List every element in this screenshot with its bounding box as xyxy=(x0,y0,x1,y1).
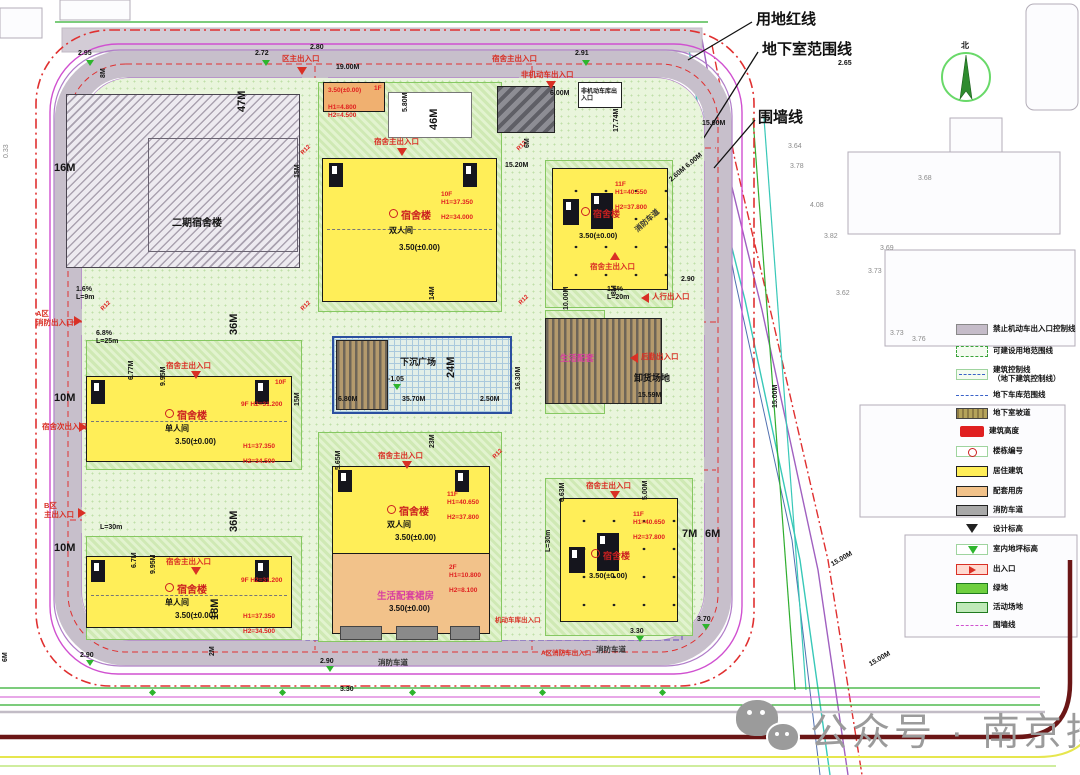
legend-swatch xyxy=(960,426,984,437)
site-plan-canvas: 二期宿舍楼 下沉广场 生活配套 卸货场地 3.50(±0.00) H1=4.80… xyxy=(0,0,1080,775)
dim-label: 2.72 xyxy=(255,50,269,58)
dim-label: 6.7M xyxy=(131,552,139,568)
elevation-marker-icon xyxy=(393,384,401,390)
dim-label: 2M xyxy=(209,646,217,656)
dorm-n-name: 宿舍楼 xyxy=(389,207,431,222)
north-label: 北 xyxy=(961,42,969,51)
dim-label: 16M xyxy=(54,162,75,174)
gate-building: 3.50(±0.00) H1=4.800 H2=4.500 1F xyxy=(323,82,385,112)
dim-label: 6.8% L=25m xyxy=(96,330,118,345)
dorm-w-h: H1=37.350 H2=34.500 xyxy=(243,435,275,466)
dim-label: 7M xyxy=(682,528,697,540)
dim-label: 23M xyxy=(429,434,437,448)
legend-item: 配套用房 xyxy=(956,486,1023,497)
entrance-arrow-icon xyxy=(630,353,638,363)
entrance-label: 宿舍主出入口 xyxy=(492,55,537,64)
dim-label: 3.30 xyxy=(340,686,354,694)
dim-label: 36M xyxy=(228,511,240,532)
dim-label: 36M xyxy=(228,314,240,335)
elevation-marker-icon xyxy=(326,666,334,672)
entrance-label: A区消防车出入口 xyxy=(541,650,591,657)
dim-label: 17.74M xyxy=(613,109,621,132)
dorm-w-side: 9F H2=31.200 xyxy=(241,393,282,409)
entrance-label: 区主出入口 xyxy=(282,55,320,64)
canopy xyxy=(396,626,438,640)
spot-elevation: 0.33 xyxy=(3,144,11,158)
spot-elevation: 3.73 xyxy=(868,268,882,276)
dim-label: 6.77M xyxy=(128,361,136,380)
dim-label: 15.59M xyxy=(638,392,661,400)
dim-label: 35.70M xyxy=(402,396,425,404)
elevation-marker-icon xyxy=(86,660,94,666)
gate-elev: 3.50(±0.00) xyxy=(328,87,361,95)
callout-wall-line: 围墙线 xyxy=(758,106,803,127)
dim-label: 2.65 xyxy=(838,60,852,68)
dim-label: 18M xyxy=(209,599,221,620)
entrance-label: 宿舍主出入口 xyxy=(166,558,211,567)
elevation-marker-icon xyxy=(262,60,270,66)
legend-swatch xyxy=(956,620,988,631)
dim-label: 2.90 xyxy=(320,658,334,666)
legend-swatch xyxy=(956,446,988,457)
phase2-label: 二期宿舍楼 xyxy=(172,218,222,229)
dim-label: 8M xyxy=(100,68,108,78)
bike-ramp xyxy=(497,86,555,133)
dim-label: 6M xyxy=(705,528,720,540)
spot-elevation: 3.82 xyxy=(824,233,838,241)
legend-item: 消防车道 xyxy=(956,505,1023,516)
legend-swatch xyxy=(956,564,988,575)
dorm-w-name: 宿舍楼 xyxy=(165,407,207,422)
podium-elev: 3.50(±0.00) xyxy=(389,604,430,613)
legend-swatch xyxy=(956,369,988,380)
dim-label: 6.80M xyxy=(338,396,357,404)
dim-label: L=30m xyxy=(100,524,122,532)
entrance-label: 宿舍主出入口 xyxy=(374,138,419,147)
dim-label: 24M xyxy=(445,357,457,378)
fire-lane-label: 消防车道 xyxy=(596,644,626,655)
spot-elevation: 3.69 xyxy=(880,245,894,253)
dorm-n-elev: 3.50(±0.00) xyxy=(399,243,440,252)
spot-elevation: 3.68 xyxy=(918,175,932,183)
dorm-sw-h: H1=37.350 H2=34.500 xyxy=(243,605,275,636)
phase2-inner-outline xyxy=(148,138,298,252)
dorm-w-corner: 10F xyxy=(275,379,286,387)
legend-swatch xyxy=(956,524,988,535)
dim-label: 3.30 xyxy=(630,628,644,636)
legend-item: 可建设用地范围线 xyxy=(956,346,1053,357)
plaza-label: 下沉广场 xyxy=(400,358,436,368)
dorm-sw: 宿舍楼 单人间 3.50(±0.00) 9F H2=31.200 H1=37.3… xyxy=(86,556,292,628)
unload-label: 卸货场地 xyxy=(634,374,670,384)
legend-swatch xyxy=(956,324,988,335)
entrance-arrow-icon xyxy=(610,252,620,260)
legend-item: 建筑控制线 （地下建筑控制线） xyxy=(956,366,1061,383)
bike-ramp-label: 非机动车库出入口 xyxy=(581,89,621,102)
dim-label: 15.20M xyxy=(505,162,528,170)
entrance-arrow-icon xyxy=(78,508,86,518)
elevation-marker-icon xyxy=(636,636,644,642)
entrance-label: 人行出入口 xyxy=(652,293,690,302)
legend-swatch xyxy=(956,602,988,613)
watermark: 公众号 · 南京择校 xyxy=(736,700,1080,756)
legend-swatch xyxy=(956,346,988,357)
dorm-sw-side: 9F H2=31.200 xyxy=(241,569,282,585)
entrance-label: 宿舍主出入口 xyxy=(586,482,631,491)
dorm-sw-name: 宿舍楼 xyxy=(165,581,207,596)
dim-label: 6M xyxy=(2,652,10,662)
dim-label: 5.80M xyxy=(402,93,410,112)
dim-label: 15M xyxy=(294,164,302,178)
entrance-arrow-icon xyxy=(641,293,649,303)
dim-label: 1.6% L=9m xyxy=(76,286,94,301)
callout-land-red-line: 用地红线 xyxy=(756,8,816,29)
legend-item: 地下车库范围线 xyxy=(956,390,1046,401)
legend-swatch xyxy=(956,486,988,497)
dim-label: 10.00M xyxy=(563,287,571,310)
dim-label: 19.00M xyxy=(336,64,359,72)
entrance-arrow-icon xyxy=(79,422,87,432)
watermark-text: 公众号 · 南京择校 xyxy=(810,701,1080,756)
dorm-n-fl: 10F H1=37.350 H2=34.000 xyxy=(441,183,473,222)
entrance-arrow-icon xyxy=(402,461,412,469)
dim-label: 47M xyxy=(236,91,248,112)
legend-swatch xyxy=(956,583,988,594)
canopy xyxy=(450,626,480,640)
dorm-s-room: 双人间 xyxy=(387,519,411,530)
dim-label: 2.91 xyxy=(575,50,589,58)
dim-label: 15.00M xyxy=(702,120,725,128)
dorm-se-elev: 3.50(±0.00) xyxy=(589,571,627,580)
bike-ramp-box: 非机动车库出入口 xyxy=(578,82,622,108)
entrance-arrow-icon xyxy=(191,371,201,379)
legend-swatch xyxy=(956,390,988,401)
dim-label: 3.70 xyxy=(697,616,711,624)
spot-elevation: 3.64 xyxy=(788,143,802,151)
legend-swatch xyxy=(956,466,988,477)
spot-elevation: 3.62 xyxy=(836,290,850,298)
dim-label: 10M xyxy=(54,542,75,554)
legend-item: 出入口 xyxy=(956,564,1016,575)
gate-h: H1=4.800 H2=4.500 xyxy=(328,96,384,119)
dim-label: L=30m xyxy=(545,530,553,552)
dorm-w: 宿舍楼 单人间 3.50(±0.00) 10F 9F H2=31.200 H1=… xyxy=(86,376,292,462)
dorm-se: 宿舍楼 3.50(±0.00) 11F H1=40.650 H2=37.800 xyxy=(560,498,678,622)
dorm-ne-fl: 11F H1=40.550 H2=37.800 xyxy=(615,173,647,212)
legend-item: 围墙线 xyxy=(956,620,1016,631)
wechat-icon xyxy=(736,700,796,756)
dim-label: 6.00M xyxy=(550,90,569,98)
entrance-arrow-icon xyxy=(610,491,620,499)
dorm-sw-room: 单人间 xyxy=(165,597,189,608)
entrance-arrow-icon xyxy=(297,67,307,75)
dim-label: 5.00M xyxy=(642,481,650,500)
legend-swatch xyxy=(956,505,988,516)
dim-label: 15.00M xyxy=(772,385,780,408)
dorm-se-name: 宿舍楼 xyxy=(591,549,630,562)
entrance-arrow-icon xyxy=(546,81,556,89)
legend-item: 居住建筑 xyxy=(956,466,1023,477)
legend-item: 建筑高度 xyxy=(956,426,1019,437)
dim-label: -1.05 xyxy=(388,376,404,384)
legend-item: 地下室坡道 xyxy=(956,408,1031,419)
dim-label: 9.95M xyxy=(160,367,168,386)
spot-elevation: 4.08 xyxy=(810,202,824,210)
dim-label: 6.63M xyxy=(559,483,567,502)
entrance-arrow-icon xyxy=(397,148,407,156)
dorm-s-elev: 3.50(±0.00) xyxy=(395,533,436,542)
dim-label: 2.95 xyxy=(78,50,92,58)
podium-name: 生活配套裙房 xyxy=(377,588,434,602)
dim-label: 10M xyxy=(54,392,75,404)
gate-floors: 1F xyxy=(374,85,382,93)
legend-item: 禁止机动车出入口控制线 xyxy=(956,324,1076,335)
entrance-label: 机动车库出入口 xyxy=(495,617,541,624)
dim-label: 1.5% L=20m xyxy=(607,286,629,301)
entrance-label: 后勤出入口 xyxy=(641,353,679,362)
entrance-label: A区 消防出入口 xyxy=(36,310,74,327)
legend-swatch xyxy=(956,408,988,419)
entrance-label: B区 主出入口 xyxy=(44,502,74,519)
dorm-se-fl: 11F H1=40.650 H2=37.800 xyxy=(633,503,665,542)
entrance-arrow-icon xyxy=(74,316,82,326)
dim-label: 14M xyxy=(429,286,437,300)
podium-fl: 2F H1=10.800 H2=8.100 xyxy=(449,556,481,595)
dim-label: 46M xyxy=(428,109,440,130)
spot-elevation: 3.76 xyxy=(912,336,926,344)
callout-basement-line: 地下室范围线 xyxy=(762,38,852,59)
service-label: 生活配套 xyxy=(560,352,594,364)
dim-label: 2.90 xyxy=(681,276,695,284)
legend-item: 活动场地 xyxy=(956,602,1023,613)
dorm-s-name: 宿舍楼 xyxy=(387,503,429,518)
entrance-label: 宿舍主出入口 xyxy=(590,263,635,272)
entrance-label: 非机动车出入口 xyxy=(521,71,574,80)
dim-label: 2.50M xyxy=(480,396,499,404)
legend-item: 室内地坪标高 xyxy=(956,544,1038,555)
entrance-label: 宿舍主出入口 xyxy=(378,452,423,461)
legend-swatch xyxy=(956,544,988,555)
dorm-ne-elev: 3.50(±0.00) xyxy=(579,231,617,240)
dorm-w-elev: 3.50(±0.00) xyxy=(175,437,216,446)
canopy xyxy=(340,626,382,640)
fire-lane-label: 消防车道 xyxy=(378,657,408,668)
elevation-marker-icon xyxy=(582,60,590,66)
dim-label: 9.95M xyxy=(150,555,158,574)
dorm-n-room: 双人间 xyxy=(389,225,413,236)
dim-label: 2.80 xyxy=(310,44,324,52)
spot-elevation: 3.78 xyxy=(790,163,804,171)
legend-item: 楼栋编号 xyxy=(956,446,1023,457)
dorm-n: 宿舍楼 双人间 3.50(±0.00) 10F H1=37.350 H2=34.… xyxy=(322,158,497,302)
dorm-ne: 宿舍楼 3.50(±0.00) 11F H1=40.550 H2=37.800 xyxy=(552,168,668,290)
elevation-marker-icon xyxy=(86,60,94,66)
dorm-s-fl: 11F H1=40.650 H2=37.800 xyxy=(447,483,479,522)
podium: 生活配套裙房 3.50(±0.00) 2F H1=10.800 H2=8.100 xyxy=(332,554,490,634)
spot-elevation: 3.73 xyxy=(890,330,904,338)
dim-label: 6M xyxy=(524,138,532,148)
dorm-w-room: 单人间 xyxy=(165,423,189,434)
entrance-label: 宿舍主出入口 xyxy=(166,362,211,371)
dim-label: 5.65M xyxy=(335,451,343,470)
elevation-marker-icon xyxy=(702,624,710,630)
dim-label: 15M xyxy=(294,392,302,406)
legend-item: 绿地 xyxy=(956,583,1008,594)
dim-label: 16.30M xyxy=(515,367,523,390)
legend-item: 设计标高 xyxy=(956,524,1023,535)
dorm-s: 宿舍楼 双人间 3.50(±0.00) 11F H1=40.650 H2=37.… xyxy=(332,466,490,554)
entrance-arrow-icon xyxy=(191,567,201,575)
dim-label: 2.90 xyxy=(80,652,94,660)
